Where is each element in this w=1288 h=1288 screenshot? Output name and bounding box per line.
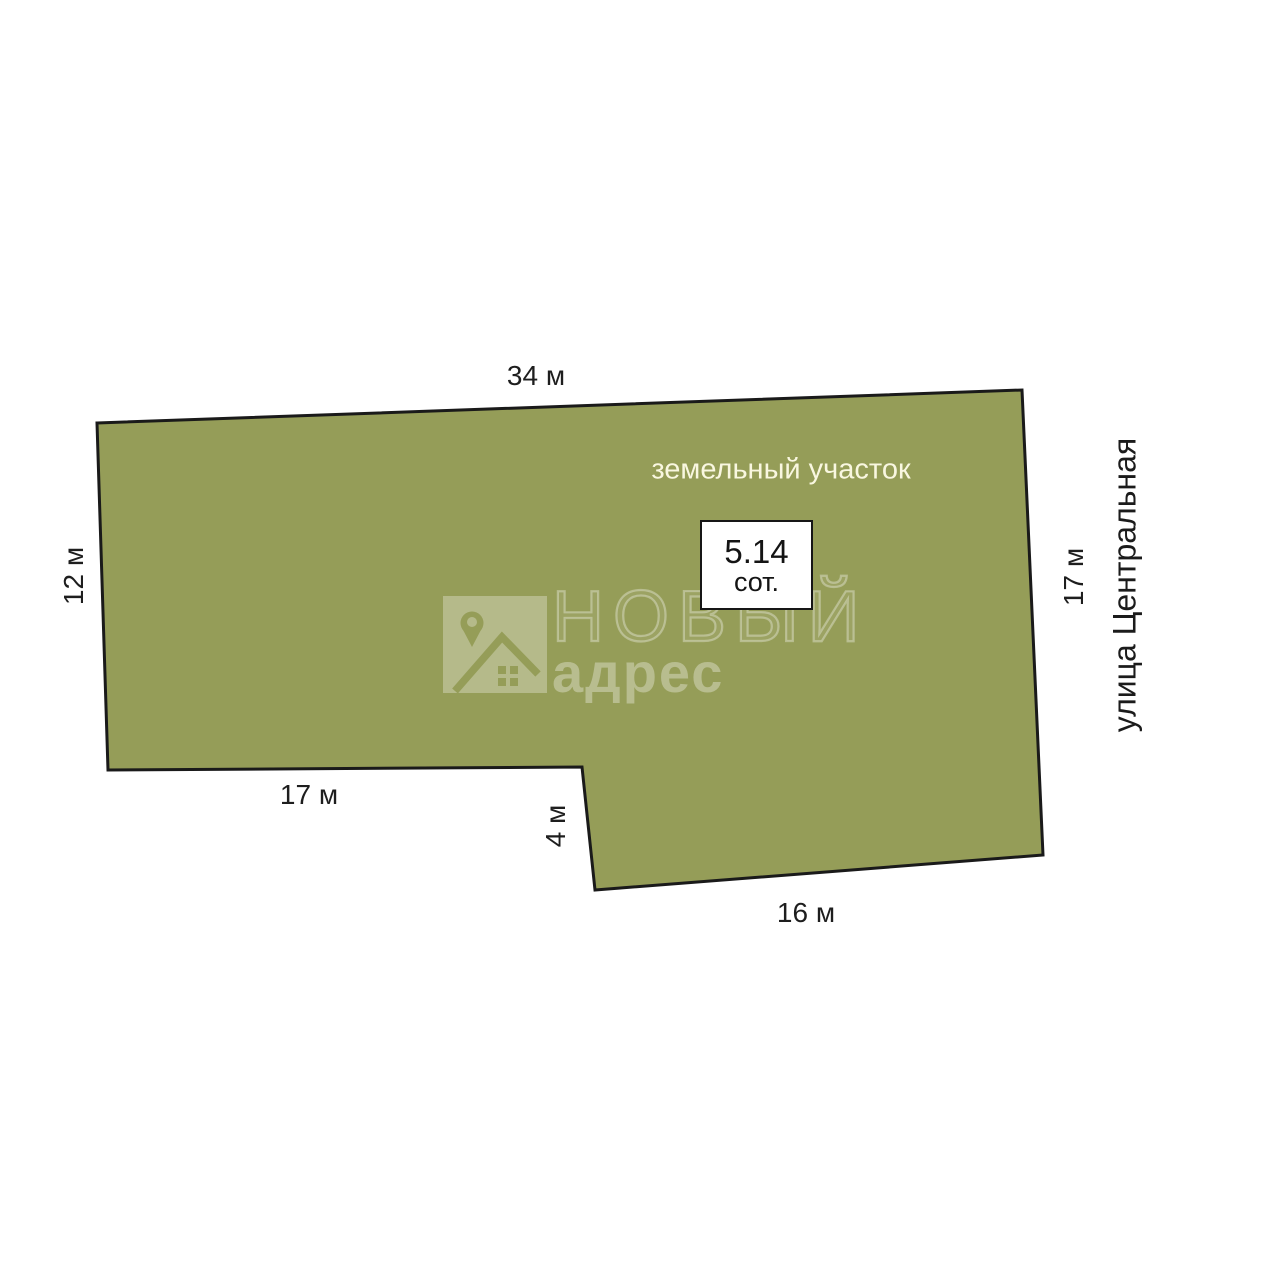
plot-name-label: земельный участок (651, 454, 910, 487)
watermark-brand-bottom: адрес (552, 645, 724, 701)
land-plot-diagram: НОВЫЙ адрес 5.14 сот. земельный участок … (0, 0, 1288, 1288)
area-value: 5.14 (724, 535, 788, 568)
brand-logo (443, 596, 547, 693)
dimension-bottom-right-label: 16 м (777, 897, 835, 929)
street-name-label: улица Центральная (1107, 438, 1144, 732)
dimension-bottom-left-label: 17 м (280, 779, 338, 811)
area-box: 5.14 сот. (700, 520, 813, 610)
dimension-top-label: 34 м (507, 360, 565, 392)
dimension-left-label: 12 м (58, 547, 90, 605)
dimension-right-label: 17 м (1058, 548, 1090, 606)
area-unit: сот. (734, 569, 779, 596)
dimension-notch-label: 4 м (540, 805, 572, 848)
